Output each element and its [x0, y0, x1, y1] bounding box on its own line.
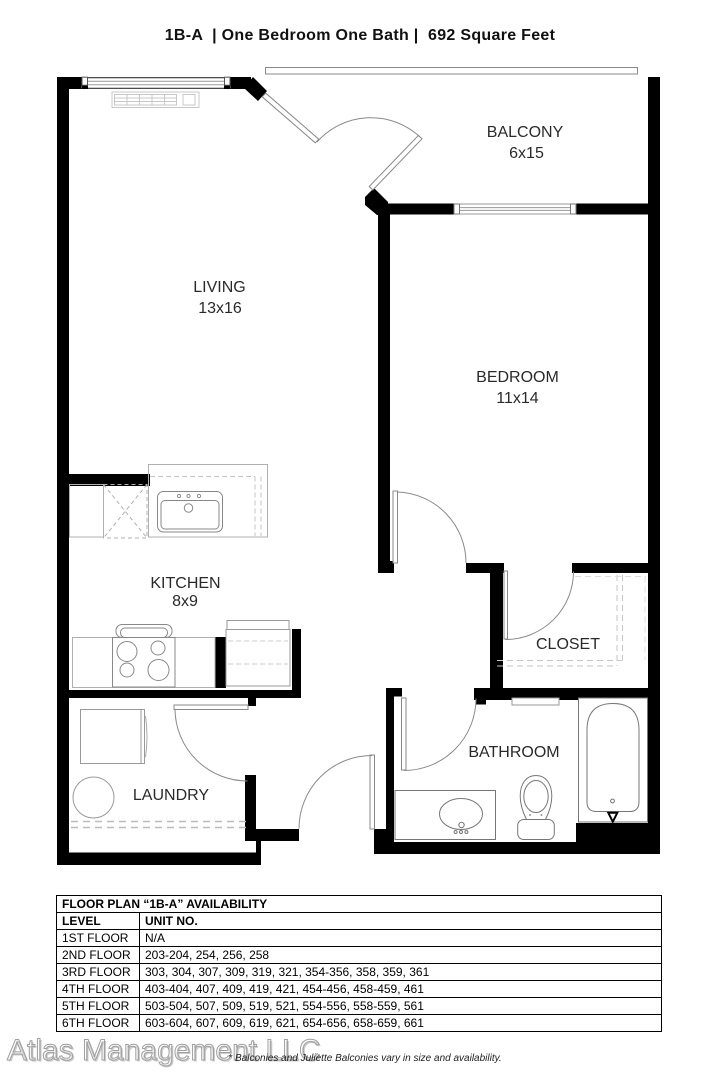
- svg-text:BEDROOM: BEDROOM: [476, 369, 559, 386]
- svg-text:BALCONY: BALCONY: [487, 124, 564, 141]
- svg-text:11x14: 11x14: [496, 390, 539, 407]
- svg-text:CLOSET: CLOSET: [536, 636, 600, 653]
- svg-text:1B-A | One Bedroom One Bath |: 1B-A | One Bedroom One Bath | 692 Square…: [165, 27, 556, 44]
- svg-text:LAUNDRY: LAUNDRY: [133, 787, 210, 804]
- svg-text:BATHROOM: BATHROOM: [468, 744, 559, 761]
- svg-text:LIVING: LIVING: [193, 279, 245, 296]
- svg-text:KITCHEN: KITCHEN: [150, 575, 220, 592]
- svg-text:6x15: 6x15: [509, 145, 544, 162]
- svg-text:8x9: 8x9: [172, 593, 198, 610]
- svg-text:13x16: 13x16: [198, 300, 242, 317]
